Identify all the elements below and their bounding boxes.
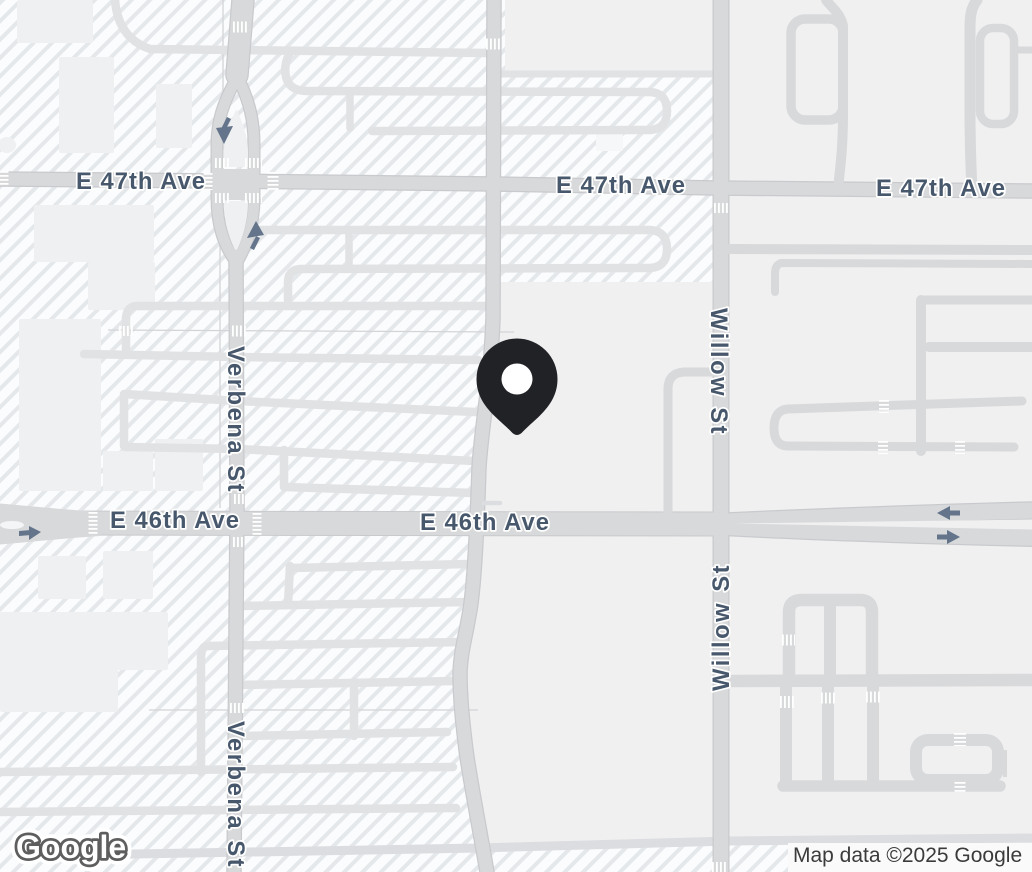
svg-text:E 47th Ave: E 47th Ave [556,172,686,199]
svg-text:Willow St: Willow St [708,563,735,691]
svg-text:Map data ©2025 Google: Map data ©2025 Google [793,844,1022,867]
svg-text:E 46th Ave: E 46th Ave [420,509,550,536]
svg-text:Google: Google [16,829,126,865]
svg-text:E 46th Ave: E 46th Ave [110,507,240,534]
svg-text:Willow St: Willow St [705,308,732,436]
svg-text:Verbena St: Verbena St [222,721,249,869]
svg-text:E 47th Ave: E 47th Ave [76,168,206,195]
svg-text:Verbena St: Verbena St [222,346,249,494]
svg-text:E 47th Ave: E 47th Ave [876,175,1006,202]
